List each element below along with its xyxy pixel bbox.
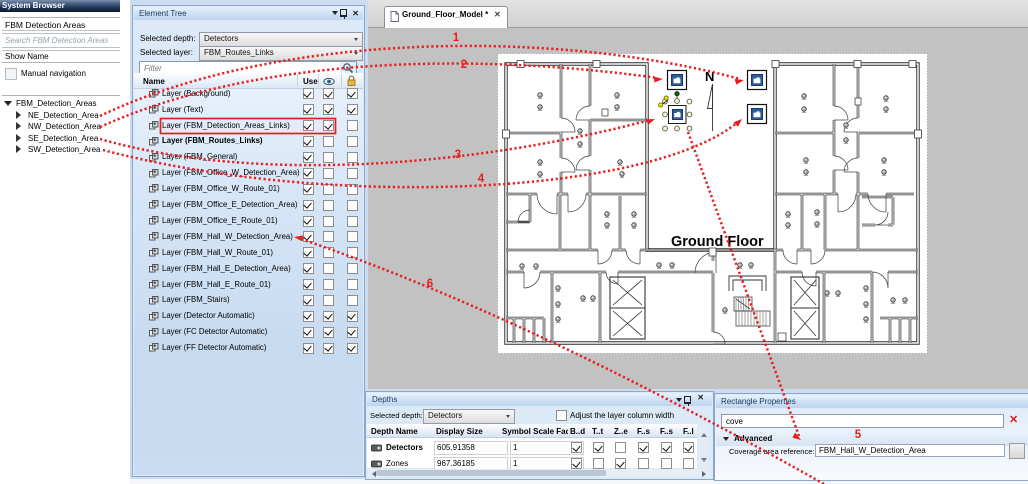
svg-text:Ground Floor: Ground Floor (671, 234, 764, 250)
svg-text:N: N (705, 69, 714, 84)
